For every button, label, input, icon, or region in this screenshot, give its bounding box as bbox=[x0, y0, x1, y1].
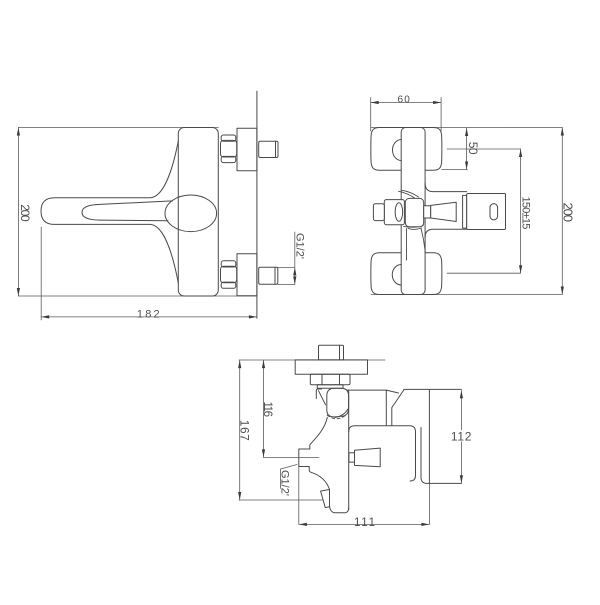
svg-text:112: 112 bbox=[451, 430, 472, 444]
svg-text:G1/2': G1/2' bbox=[293, 233, 305, 259]
svg-text:50: 50 bbox=[466, 142, 480, 155]
svg-text:G1/2': G1/2' bbox=[279, 470, 291, 496]
svg-text:167: 167 bbox=[237, 420, 249, 442]
svg-text:182: 182 bbox=[137, 308, 162, 320]
svg-text:111: 111 bbox=[354, 517, 377, 529]
svg-text:116: 116 bbox=[261, 402, 273, 417]
svg-text:60: 60 bbox=[398, 94, 412, 105]
svg-text:150±15: 150±15 bbox=[520, 197, 532, 230]
svg-text:200: 200 bbox=[18, 204, 32, 222]
svg-text:200: 200 bbox=[561, 203, 576, 222]
